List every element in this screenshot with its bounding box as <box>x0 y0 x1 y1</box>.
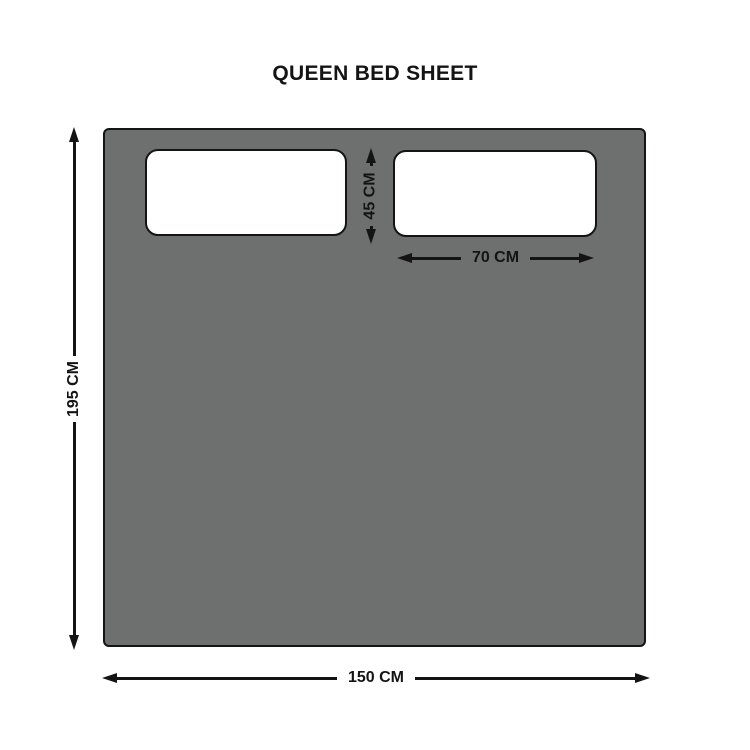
diagram-title: QUEEN BED SHEET <box>0 62 750 86</box>
sheet-height-label: 195 CM <box>65 360 83 416</box>
pillow-height-label: 45 CM <box>362 172 380 219</box>
dimension-line <box>412 257 461 260</box>
dimension-pillow-width: 70 CM <box>397 248 594 268</box>
dimension-line <box>73 422 76 636</box>
dimension-line <box>530 257 579 260</box>
arrow-up-icon <box>366 148 376 163</box>
pillow-right-shape <box>393 150 597 237</box>
sheet-height-label-box: 195 CM <box>64 360 84 418</box>
pillow-height-label-box: 45 CM <box>361 170 381 222</box>
arrow-left-icon <box>102 673 117 683</box>
dimension-line <box>415 677 635 680</box>
pillow-left-shape <box>145 149 347 236</box>
dimension-line <box>73 142 76 356</box>
arrow-down-icon <box>366 229 376 244</box>
diagram-canvas: QUEEN BED SHEET 195 CM 150 CM 45 CM <box>0 0 750 750</box>
dimension-line <box>117 677 337 680</box>
arrow-down-icon <box>69 635 79 650</box>
dimension-line <box>370 163 373 166</box>
dimension-sheet-height: 195 CM <box>64 127 84 650</box>
dimension-pillow-height: 45 CM <box>361 148 381 244</box>
arrow-up-icon <box>69 127 79 142</box>
arrow-right-icon <box>635 673 650 683</box>
arrow-left-icon <box>397 253 412 263</box>
sheet-width-label: 150 CM <box>348 669 404 687</box>
dimension-sheet-width: 150 CM <box>102 668 650 688</box>
arrow-right-icon <box>579 253 594 263</box>
pillow-width-label: 70 CM <box>472 249 519 267</box>
